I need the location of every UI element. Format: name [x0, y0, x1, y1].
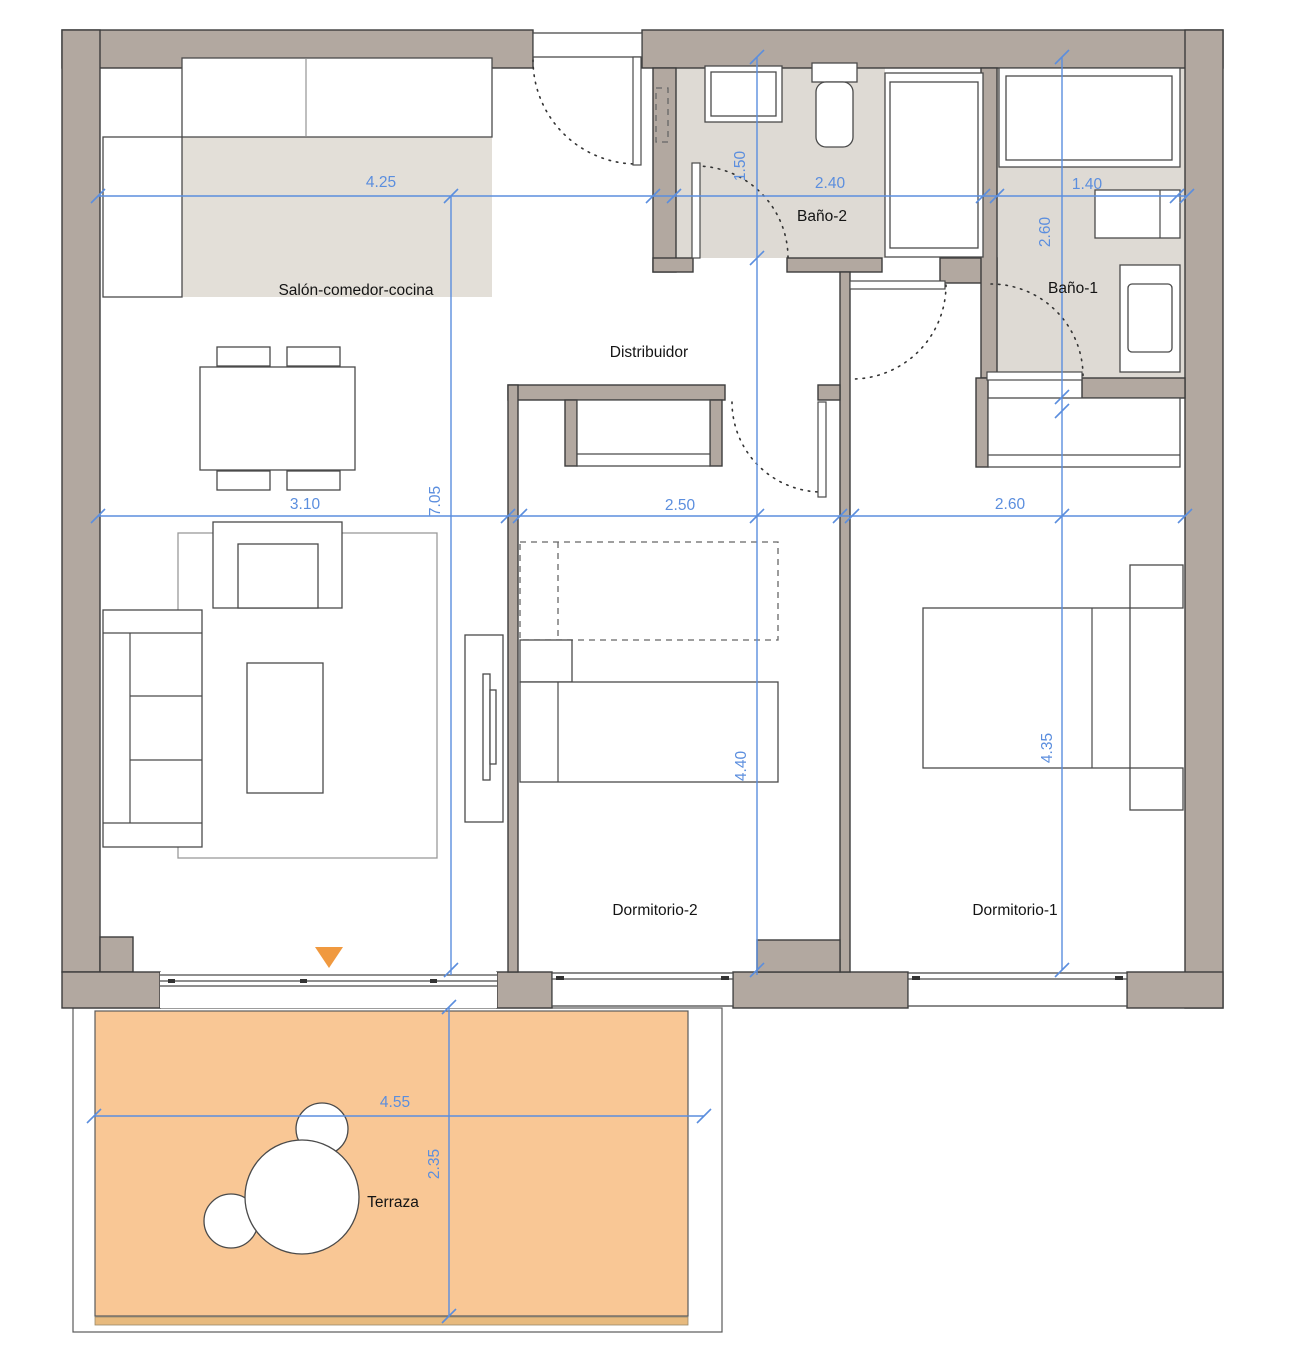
floor-plan-page: 4.25 2.40 1.40 1.50 2.60 3.10 7.05 2.50 … [0, 0, 1308, 1372]
closet2-cheek-left [565, 400, 577, 466]
closet-dorm2 [577, 400, 710, 466]
bano2-door-leaf [692, 163, 700, 258]
closet-dorm1 [988, 398, 1180, 467]
wall-top-right [642, 30, 1223, 68]
dim-label-bano1-width: 1.40 [1072, 176, 1103, 193]
dining-table [200, 367, 355, 470]
window-mark [1115, 976, 1123, 980]
dim-label-bano1-depth: 2.60 [1037, 217, 1054, 248]
dim-label-dorm2-height: 4.40 [733, 751, 750, 782]
sliding-door-mark [430, 979, 437, 983]
room-label-bano1: Baño-1 [1048, 280, 1098, 297]
dining-set [200, 347, 355, 490]
closet2-cheek-right [710, 400, 722, 466]
dim-label-terraza-depth: 2.35 [426, 1149, 443, 1179]
wall-bottom-pier-3 [733, 972, 908, 1008]
room-label-terraza: Terraza [367, 1194, 419, 1211]
terrace-table [245, 1140, 359, 1254]
dim-label-dorm2-width: 2.50 [665, 497, 696, 514]
dim-label-bano2-width: 2.40 [815, 175, 846, 192]
terrace-floor [95, 1011, 688, 1316]
entrance-marker-icon [315, 947, 343, 968]
dorm2-door-swing-arc [732, 402, 822, 492]
sofa [103, 610, 202, 847]
living-furniture [103, 522, 503, 858]
wall-left-step [100, 937, 133, 972]
dining-chair [217, 471, 270, 490]
entry-door-swing-arc [533, 60, 637, 164]
nightstand-dorm2 [520, 640, 572, 682]
window-mark [556, 976, 564, 980]
dim-label-salon-height: 7.05 [427, 486, 444, 516]
dim-label-salon-width: 4.25 [366, 174, 396, 191]
sliding-door-mark [168, 979, 175, 983]
closet1-stub [976, 378, 988, 467]
sliding-door-opening [160, 972, 497, 1008]
dim-label-dorm1-height: 4.35 [1039, 733, 1056, 763]
wall-dorm2-dorm1 [840, 272, 850, 972]
dining-chair [217, 347, 270, 366]
shower-bano2-inner [890, 82, 978, 248]
coffee-table [247, 663, 323, 793]
nightstand-dorm1-bottom [1130, 768, 1183, 810]
nightstand-dorm1-top [1130, 565, 1183, 608]
vestibule-door-leaf [850, 281, 945, 289]
entry-door-leaf [633, 57, 641, 165]
entry-recess [533, 33, 642, 57]
window-mark [721, 976, 729, 980]
room-label-salon: Salón-comedor-cocina [278, 282, 433, 299]
sink-bano2-basin [711, 72, 776, 116]
wall-bottom-pier-2 [497, 972, 552, 1008]
shower-bano1-inner [1006, 76, 1172, 160]
dining-chair [287, 471, 340, 490]
optional-bed-dashed [520, 542, 778, 640]
room-label-distribuidor: Distribuidor [610, 344, 688, 361]
wall-dorm2-north-b [818, 385, 840, 400]
sliding-door-mark [300, 979, 307, 983]
dim-label-terraza-width: 4.55 [380, 1094, 410, 1111]
bed-dorm1 [923, 608, 1130, 768]
dorm2-door-leaf [818, 402, 826, 497]
wall-bano2-south-b [787, 258, 882, 272]
armchair-cushion [238, 544, 318, 608]
wall-bano2-south-a [653, 258, 693, 272]
floor-plan-canvas: 4.25 2.40 1.40 1.50 2.60 3.10 7.05 2.50 … [0, 0, 1308, 1372]
window-dorm2 [552, 973, 733, 1006]
wall-dorm2-corner-step [757, 940, 840, 972]
wall-right [1185, 30, 1223, 1008]
wall-bottom-pier-4 [1127, 972, 1223, 1008]
window-mark [912, 976, 920, 980]
wall-dorm2-north-a [508, 385, 725, 400]
wall-bano1-south [1082, 378, 1185, 398]
window-dorm1 [908, 973, 1127, 1006]
wall-left [62, 30, 100, 972]
dim-label-bano2-depth: 1.50 [732, 151, 749, 182]
dining-chair [287, 347, 340, 366]
kitchen-counter [182, 58, 492, 137]
toilet-bano2-tank [812, 63, 857, 82]
room-label-dorm2: Dormitorio-2 [612, 902, 697, 919]
kitchen-floor-area [182, 137, 492, 297]
kitchen-tall-units [103, 137, 182, 297]
toilet-bano1-inner [1128, 284, 1172, 352]
tv-screen [483, 674, 490, 780]
terrace-edge-band [95, 1317, 688, 1325]
room-label-bano2: Baño-2 [797, 208, 847, 225]
sink-bano1 [1095, 190, 1180, 238]
toilet-bano2-bowl [816, 82, 853, 147]
vestibule-door-swing-arc [852, 285, 946, 379]
dim-label-dorm1-width: 2.60 [995, 496, 1026, 513]
room-label-dorm1: Dormitorio-1 [972, 902, 1057, 919]
vestibule-door [850, 281, 946, 379]
wall-salon-dorm2 [508, 385, 518, 972]
wall-bottom-pier-1 [62, 972, 160, 1008]
bano1-door-leaf [987, 372, 1082, 380]
dim-label-salon-inner: 3.10 [290, 496, 321, 513]
sliding-door-terrace [160, 947, 497, 1008]
tv-mount [490, 690, 496, 764]
